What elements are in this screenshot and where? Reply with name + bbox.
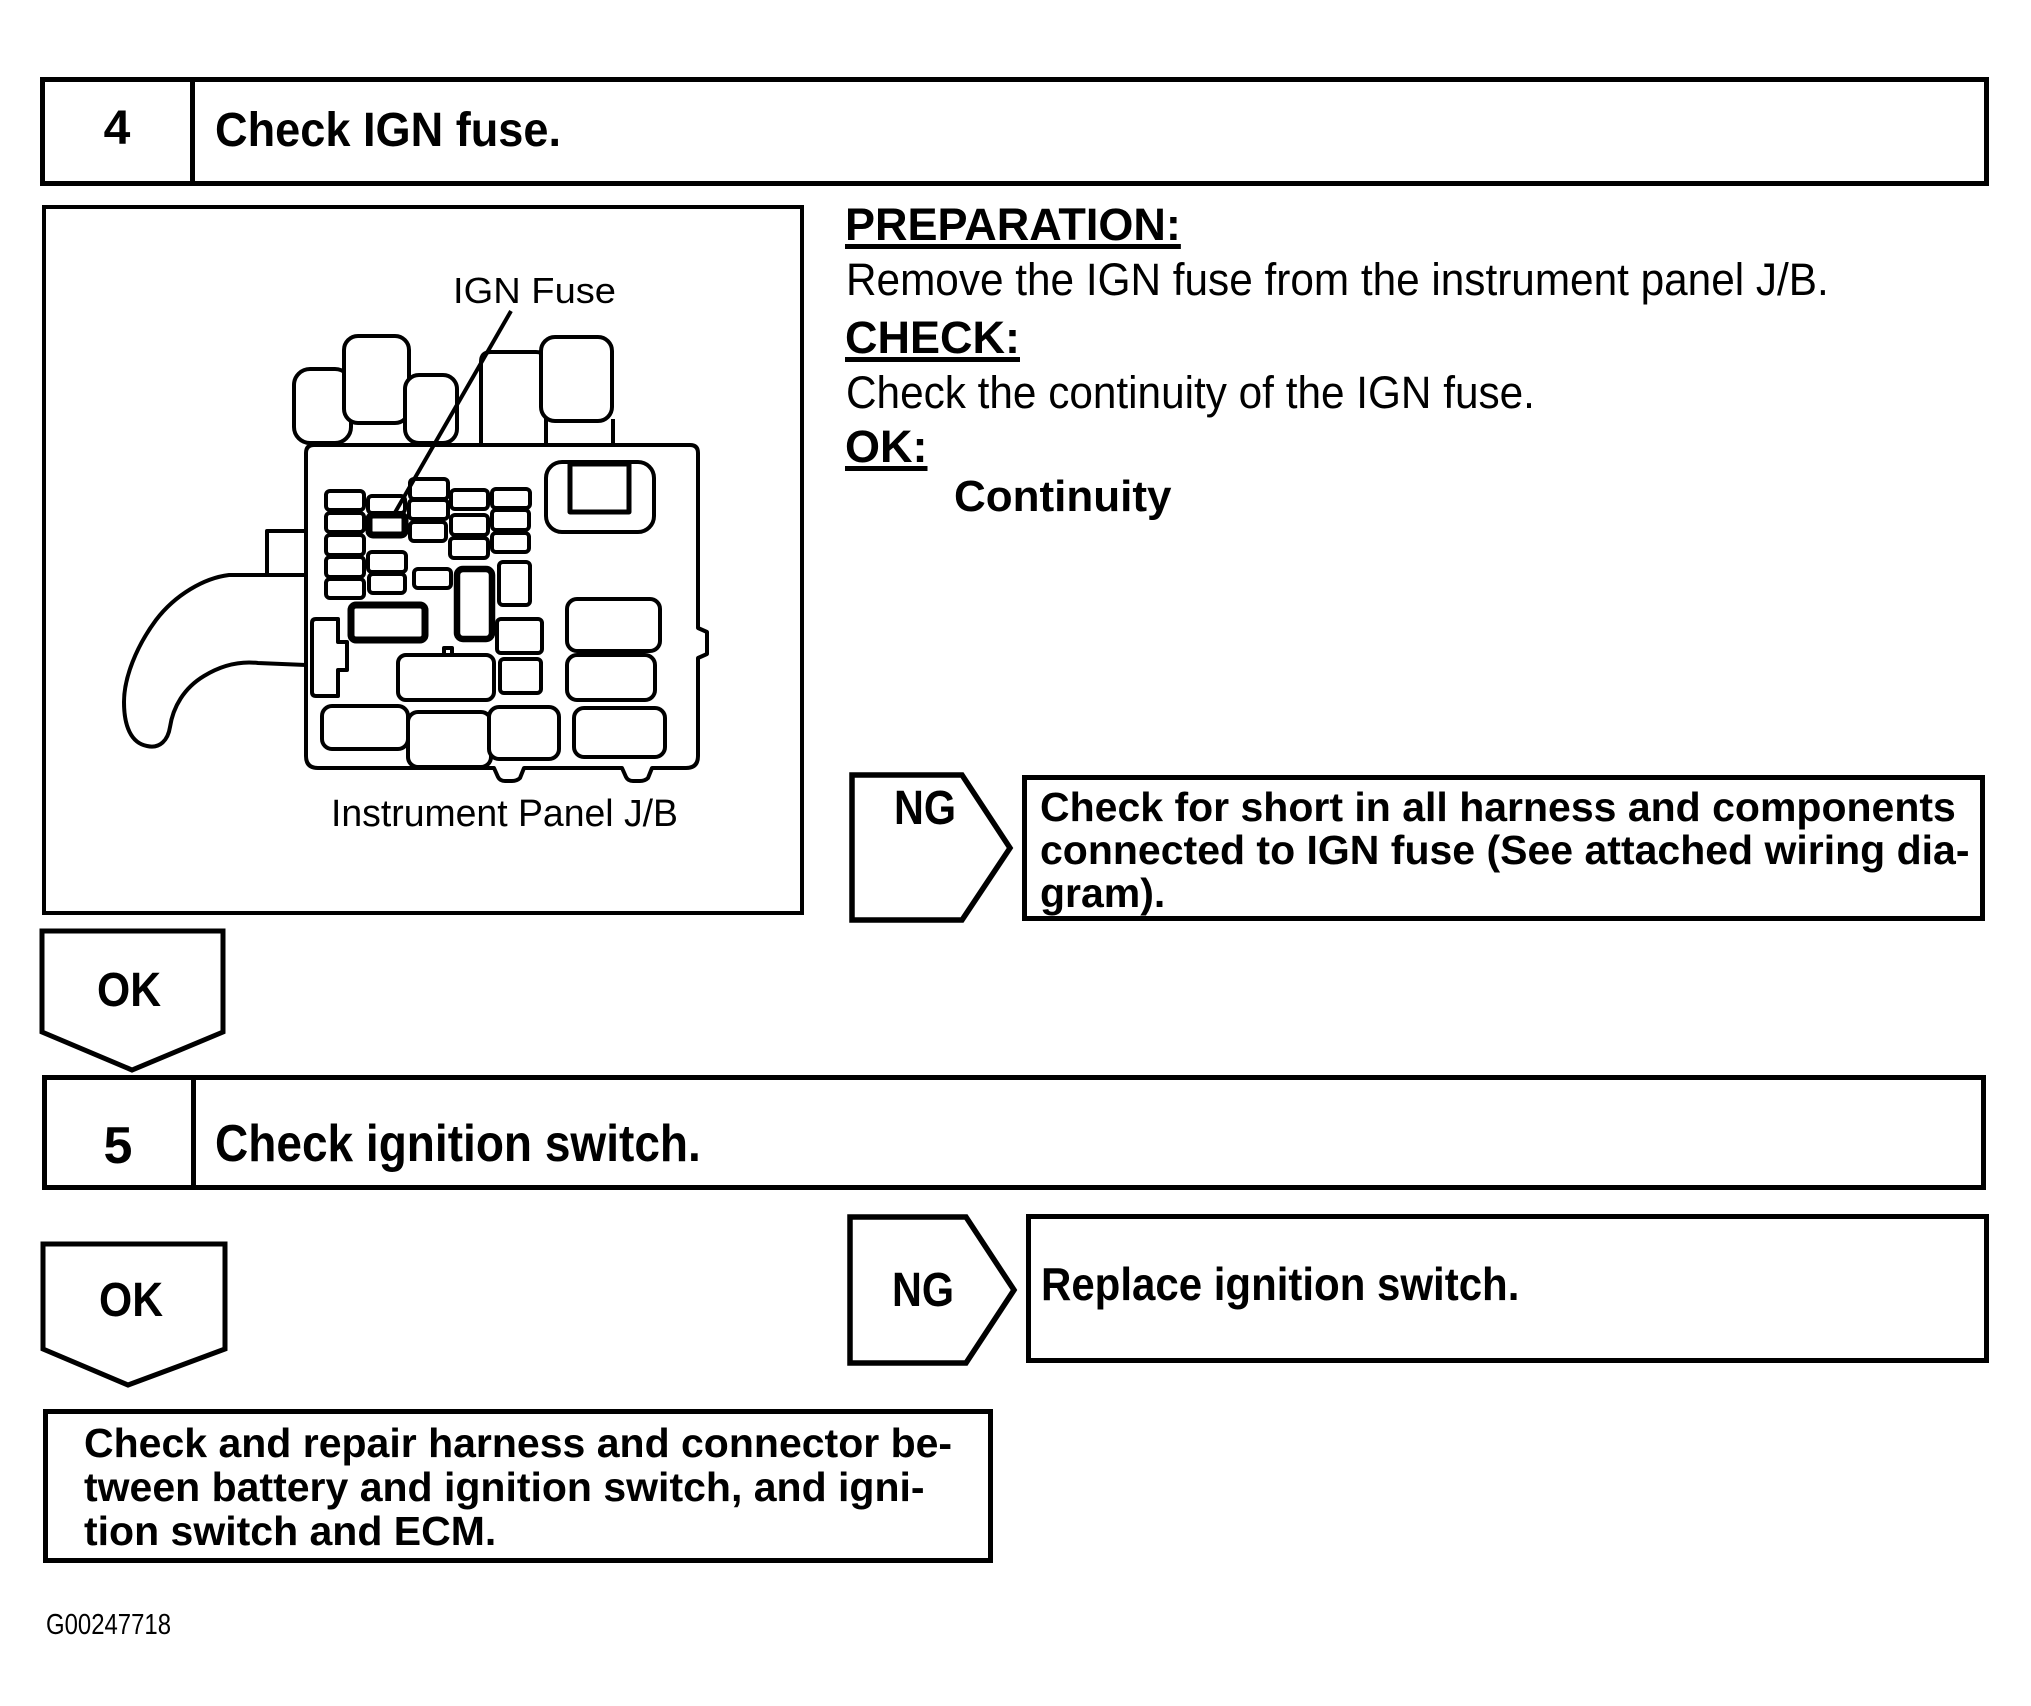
svg-text:G00247718: G00247718 — [46, 1609, 171, 1641]
svg-text:NG: NG — [892, 1264, 954, 1317]
svg-text:NG: NG — [894, 782, 956, 835]
svg-text:OK: OK — [99, 1274, 163, 1327]
svg-text:Instrument Panel J/B: Instrument Panel J/B — [331, 793, 678, 835]
svg-text:OK: OK — [97, 964, 161, 1017]
svg-text:IGN Fuse: IGN Fuse — [453, 270, 616, 311]
